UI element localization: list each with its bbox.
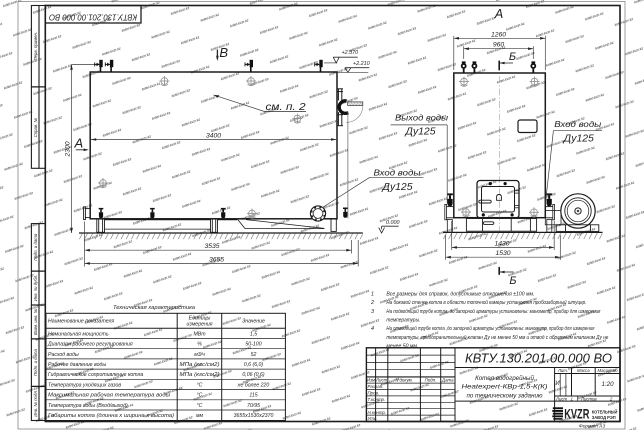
svg-text:1: 1 (371, 291, 374, 297)
svg-text:Лит.: Лит. (557, 368, 568, 373)
svg-text:1430: 1430 (494, 240, 509, 247)
svg-text:Гидравлическое сопротивление к: Гидравлическое сопротивление котла (48, 372, 143, 378)
svg-text:3655х1530х2370: 3655х1530х2370 (234, 413, 274, 419)
svg-text:Подп. и дата: Подп. и дата (33, 233, 38, 261)
svg-text:1530: 1530 (495, 250, 510, 257)
svg-text:МПа (кгс/см2): МПа (кгс/см2) (180, 372, 220, 378)
svg-text:Вход воды: Вход воды (554, 119, 602, 129)
svg-text:3535: 3535 (204, 243, 219, 250)
svg-text:Инв. № подл.: Инв. № подл. (33, 390, 38, 417)
svg-text:1260: 1260 (491, 31, 506, 38)
svg-text:Б: Б (509, 51, 516, 63)
svg-text:Масштаб: Масштаб (597, 368, 618, 373)
svg-text:КВТУ.130.201.00.000 ВО: КВТУ.130.201.00.000 ВО (465, 350, 612, 365)
svg-text:Значение: Значение (242, 319, 265, 325)
svg-text:менее 50 мм.: менее 50 мм. (386, 344, 418, 350)
svg-text:Инв. № дубл.: Инв. № дубл. (33, 275, 38, 301)
svg-text:0,06 (0,6): 0,06 (0,6) (242, 372, 264, 378)
svg-text:измерения: измерения (187, 321, 213, 327)
svg-text:ЗАВОД РЭП: ЗАВОД РЭП (592, 415, 616, 420)
svg-text:+2.370: +2.370 (341, 50, 358, 56)
svg-text:И: И (555, 381, 560, 387)
svg-text:3: 3 (371, 309, 374, 315)
svg-text:Техническая характеристика: Техническая характеристика (113, 305, 196, 311)
svg-text:115: 115 (249, 393, 257, 399)
svg-text:Лист: Лист (555, 396, 567, 401)
svg-text:м3/ч: м3/ч (194, 352, 205, 358)
svg-text:см. п. 2: см. п. 2 (266, 101, 306, 113)
svg-text:Утв.: Утв. (368, 416, 378, 421)
svg-text:МВт: МВт (193, 331, 206, 337)
svg-text:Б: Б (509, 275, 516, 287)
svg-text:Все размеры для справок, допус: Все размеры для справок, допустимые откл… (386, 291, 534, 297)
svg-text:На боковой стенке котла в обла: На боковой стенке котла в области топочн… (386, 299, 586, 306)
svg-text:Heatexpert-КВр-1,5-К(К): Heatexpert-КВр-1,5-К(К) (462, 384, 548, 391)
svg-text:А: А (494, 7, 503, 21)
svg-text:960: 960 (493, 42, 505, 49)
svg-text:Температура воды (Вход/выход): Температура воды (Вход/выход) (48, 403, 128, 409)
svg-text:А: А (73, 136, 83, 151)
svg-text:0,6 (6,0): 0,6 (6,0) (244, 362, 264, 368)
svg-text:Разраб.: Разраб. (368, 384, 384, 389)
svg-text:2: 2 (370, 300, 374, 306)
svg-text:КОТЕЛЬНЫЙ: КОТЕЛЬНЫЙ (592, 409, 618, 414)
svg-text:3655: 3655 (209, 256, 224, 263)
svg-text:Изм: Изм (367, 378, 375, 383)
svg-text:°С: °С (197, 382, 203, 388)
svg-text:2300: 2300 (65, 141, 72, 157)
svg-text:температуры, предохранительный: температуры, предохранительный клапан Ду… (386, 334, 608, 341)
svg-text:Наименование показателя: Наименование показателя (48, 319, 114, 325)
svg-text:Т.контр.: Т.контр. (368, 397, 386, 402)
svg-text:Температура уходящих газов: Температура уходящих газов (48, 382, 121, 388)
svg-text:Вход воды: Вход воды (374, 167, 422, 177)
svg-text:В: В (219, 45, 228, 60)
svg-text:Масса: Масса (577, 368, 590, 373)
svg-text:1:20: 1:20 (601, 381, 614, 388)
svg-text:Выход воды: Выход воды (395, 112, 449, 122)
svg-text:Формат А3: Формат А3 (579, 424, 606, 430)
svg-text:Максимальная рабочая температу: Максимальная рабочая температура воды (48, 393, 170, 399)
svg-text:Котел водогрейный: Котел водогрейный (475, 375, 534, 382)
svg-text:МПа (кгс/см2): МПа (кгс/см2) (180, 362, 220, 368)
svg-text:°С: °С (197, 393, 203, 399)
svg-text:70/95: 70/95 (247, 403, 260, 409)
svg-text:Ду125: Ду125 (405, 126, 436, 138)
svg-text:50-100: 50-100 (245, 342, 261, 348)
svg-text:На отводящей трубе котла ,до з: На отводящей трубе котла ,до запорной ар… (386, 325, 594, 332)
svg-text:Ду125: Ду125 (382, 181, 413, 193)
svg-text:На подводящий трубе котла, до: На подводящий трубе котла, до запорной а… (386, 308, 600, 315)
svg-text:Пров.: Пров. (368, 391, 380, 396)
svg-text:Габариты котла (длинна х ширин: Габариты котла (длинна х ширина х высота… (48, 413, 174, 419)
svg-text:КВТУ.130.201.00.000 ВО: КВТУ.130.201.00.000 ВО (49, 12, 137, 21)
svg-text:Н.контр.: Н.контр. (368, 410, 387, 415)
svg-text:не более 220: не более 220 (238, 382, 270, 388)
svg-text:Подп.: Подп. (425, 378, 437, 383)
svg-text:%: % (197, 342, 202, 348)
svg-text:мм: мм (196, 413, 204, 419)
svg-text:Расход воды: Расход воды (48, 352, 79, 358)
svg-text:Ду125: Ду125 (563, 132, 594, 144)
svg-text:4: 4 (371, 326, 374, 332)
svg-text:KVZR: KVZR (564, 405, 589, 421)
svg-text:Лист: Лист (375, 378, 388, 383)
svg-text:Рабочее давление воды: Рабочее давление воды (48, 362, 106, 368)
svg-text:1,5: 1,5 (250, 331, 257, 337)
svg-text:+2.210: +2.210 (353, 61, 370, 67)
svg-text:0.000: 0.000 (386, 220, 400, 226)
svg-text:52: 52 (251, 352, 257, 358)
svg-text:Подп. и дата: Подп. и дата (33, 349, 38, 377)
svg-text:Листов: Листов (580, 396, 597, 401)
svg-text:Дата: Дата (441, 378, 454, 383)
svg-text:Номинальная мощность: Номинальная мощность (48, 331, 109, 337)
svg-text:по техническому заданию: по техническому заданию (467, 392, 543, 399)
svg-text:Перв. примен.: Перв. примен. (33, 32, 38, 61)
svg-text:Взам. инв. №: Взам. инв. № (33, 308, 38, 335)
svg-text:температуры.: температуры. (386, 318, 420, 324)
svg-text:Справ. №: Справ. № (33, 117, 38, 137)
svg-text:3400: 3400 (206, 133, 221, 140)
svg-text:N докум.: N докум. (395, 378, 413, 383)
svg-text:Диапазон рабочего регулировани: Диапазон рабочего регулирования (47, 342, 133, 348)
svg-text:°С: °С (197, 403, 203, 409)
